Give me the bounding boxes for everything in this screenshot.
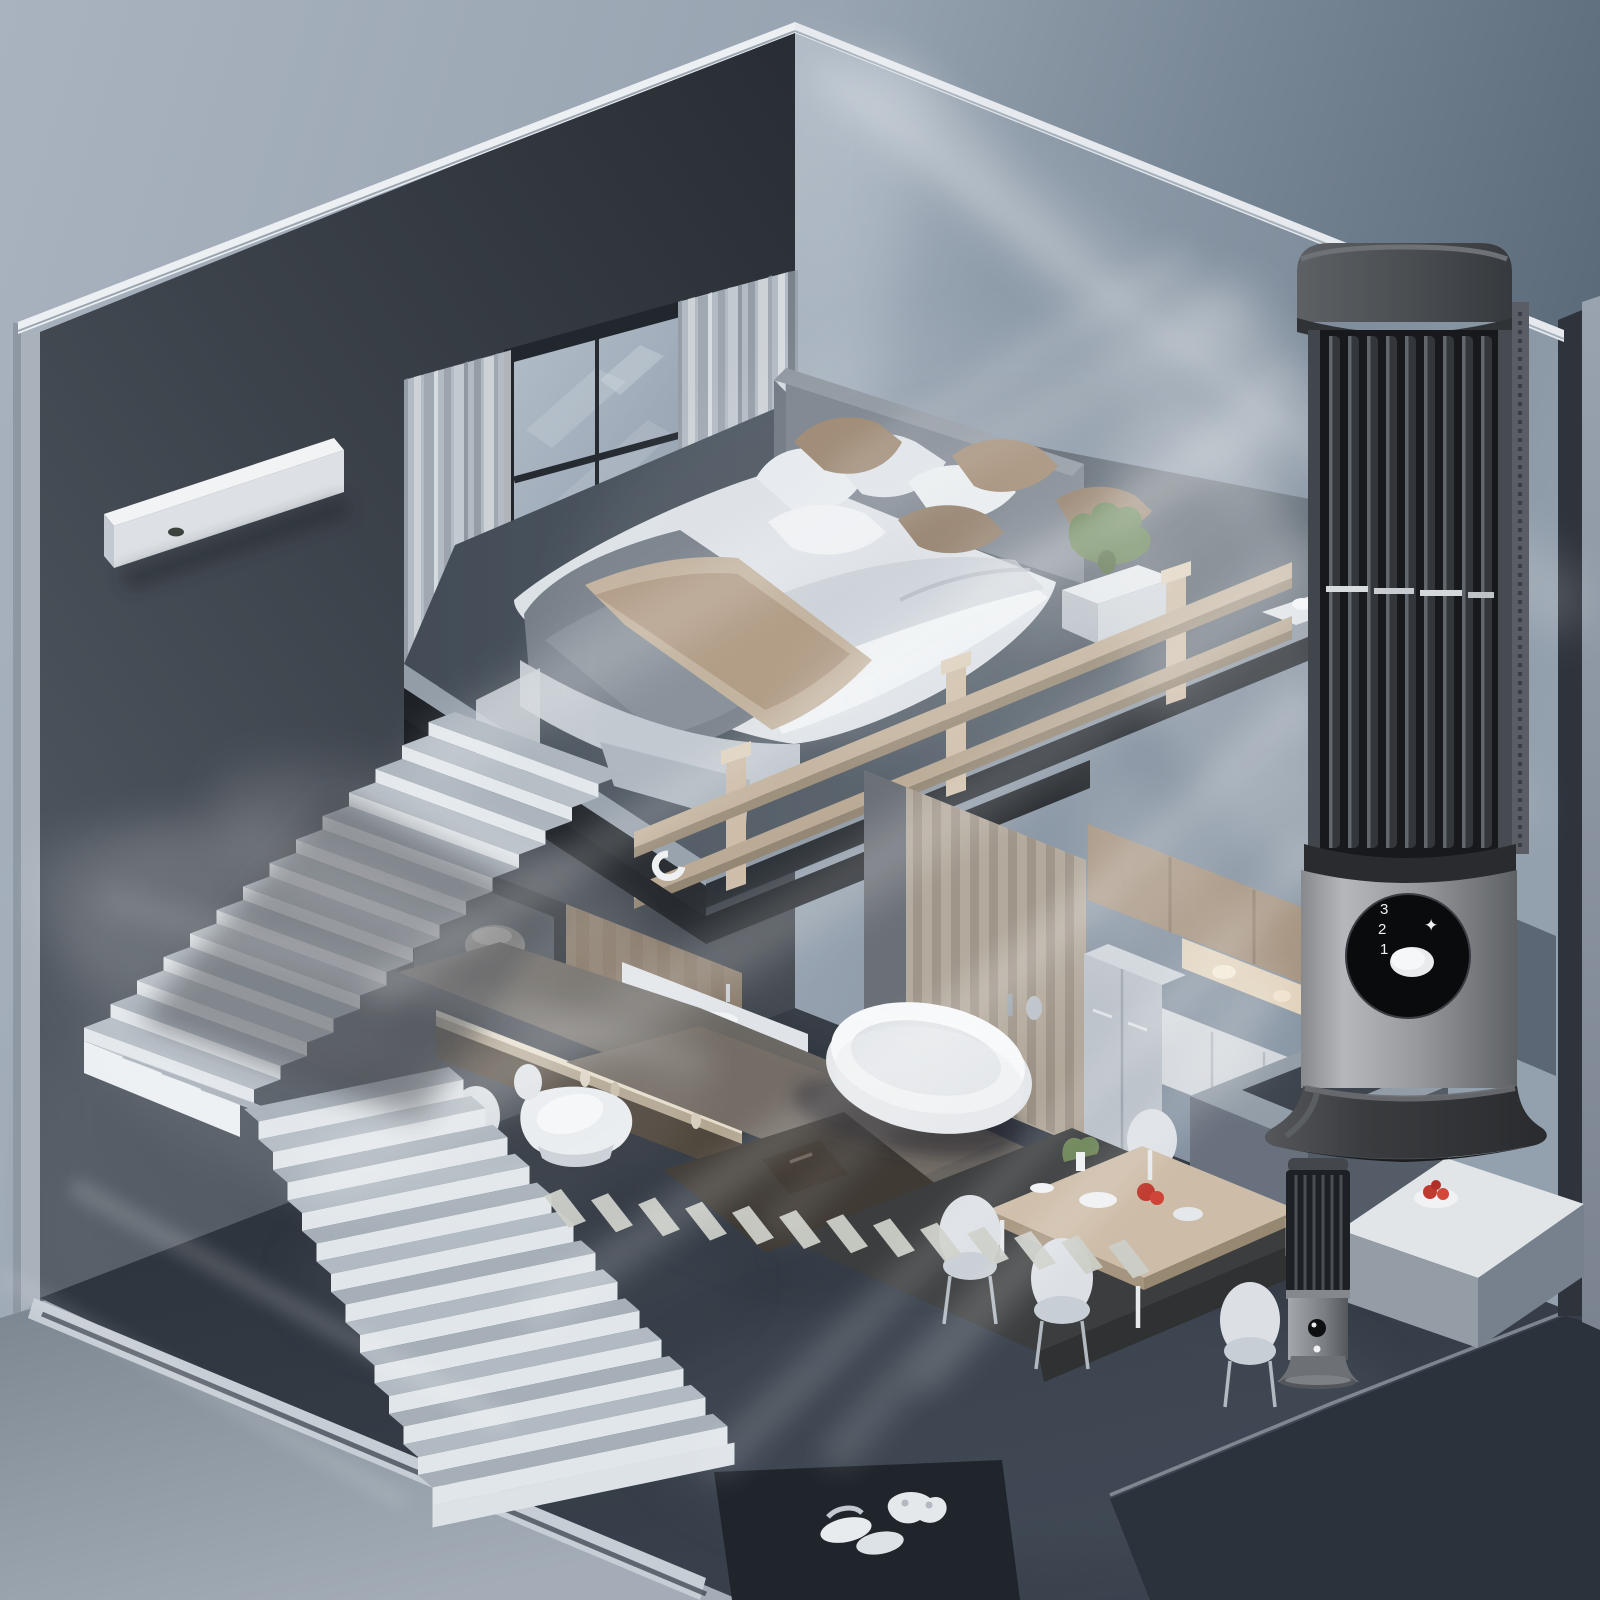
svg-text:2: 2 <box>1378 921 1386 938</box>
svg-text:✦: ✦ <box>1424 916 1438 935</box>
svg-text:3: 3 <box>1380 901 1388 918</box>
svg-text:1: 1 <box>1380 941 1388 958</box>
